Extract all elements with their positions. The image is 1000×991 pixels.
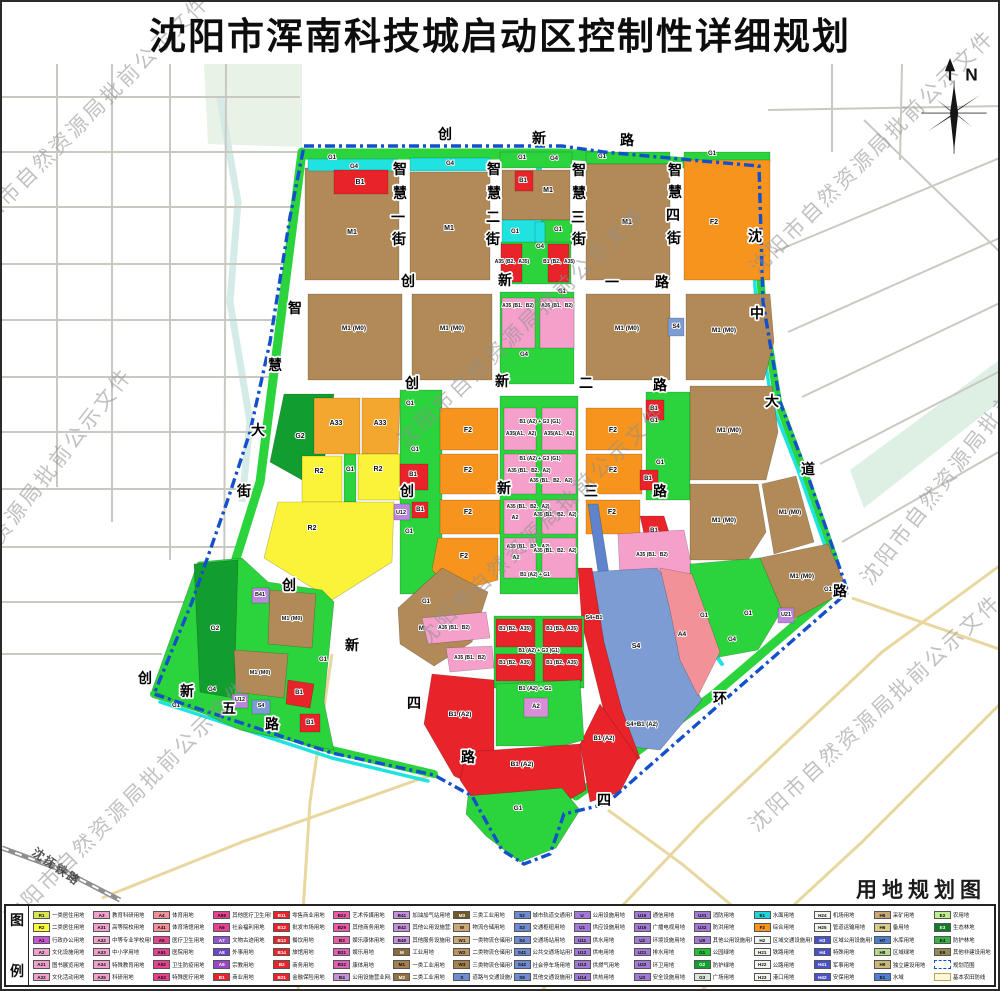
legend-swatch: U15 bbox=[634, 911, 651, 920]
compass-star-vertical bbox=[950, 85, 958, 151]
legend-swatch bbox=[934, 960, 951, 969]
parcel-label: F2 bbox=[464, 509, 472, 516]
legend-label: 供电用地 bbox=[593, 948, 615, 956]
legend-entry: A21图书展览用地 bbox=[33, 959, 91, 971]
legend-label: 水库用地 bbox=[893, 936, 915, 944]
legend-entry: A33中小学用地 bbox=[93, 946, 151, 958]
legend-label: 公用设施营业网点用地 bbox=[352, 973, 391, 981]
parcel-label: B1 (A2) bbox=[449, 711, 472, 718]
parcel-label: M1 (M0) bbox=[440, 325, 464, 332]
legend-label: 综合用地 bbox=[773, 923, 795, 931]
legend-swatch: H6 bbox=[874, 923, 891, 932]
parcel-label: A35 (B2、A35) bbox=[495, 259, 530, 265]
legend-label: 公用设施用地 bbox=[593, 911, 625, 919]
legend-swatch: H41 bbox=[814, 960, 831, 969]
road-name-char: 中 bbox=[750, 305, 764, 321]
legend-entry: A3教育科研用地 bbox=[93, 909, 151, 921]
road-name-char: 新 bbox=[498, 272, 512, 288]
legend-label: 供热用地 bbox=[593, 973, 615, 981]
parcel bbox=[502, 170, 570, 220]
legend-swatch: A35 bbox=[93, 973, 110, 982]
legend-entry: H4特殊用地 bbox=[814, 946, 872, 958]
parcel bbox=[308, 294, 402, 380]
legend-swatch: H7 bbox=[874, 936, 891, 945]
legend-entry: G1公园绿地 bbox=[694, 946, 752, 958]
map-type-label: 用地规划图 bbox=[856, 874, 986, 904]
parcel-label: B1 (B2、A35) bbox=[499, 660, 531, 666]
legend-label: 采矿用地 bbox=[893, 911, 915, 919]
road-name-char: 创 bbox=[437, 126, 452, 142]
legend-label: 康体用地 bbox=[352, 961, 374, 969]
legend-label: 规划范围 bbox=[953, 961, 975, 969]
parcel-label: G1 bbox=[518, 155, 527, 161]
legend-label: 区域绿地 bbox=[893, 948, 915, 956]
legend-swatch: B42 bbox=[393, 923, 410, 932]
legend-swatch: B1 bbox=[213, 973, 230, 982]
legend-swatch: U32 bbox=[694, 923, 711, 932]
parcel bbox=[504, 408, 536, 450]
legend-column: H5采矿用地H6备用地H7水库用地H8区域绿地H9独立建设用地E1水域 bbox=[874, 909, 932, 983]
parcel-label: G4 bbox=[350, 164, 359, 170]
road-name-char: 三 bbox=[571, 209, 585, 225]
parcel-label: G4 bbox=[728, 637, 737, 643]
legend-swatch: A33 bbox=[93, 948, 110, 957]
legend-swatch: U31 bbox=[694, 911, 711, 920]
legend-entry: S9其他交通设施用地 bbox=[514, 971, 572, 983]
legend-label: 行政办公用地 bbox=[52, 936, 84, 944]
legend-label: 通信用地 bbox=[653, 911, 675, 919]
legend-swatch: M3 bbox=[453, 911, 470, 920]
legend-entry: A35科研用地 bbox=[93, 971, 151, 983]
parcel-label: A35 (B1、B2、A2) bbox=[507, 468, 550, 474]
legend-swatch: R2 bbox=[33, 923, 50, 932]
legend-swatch: A34 bbox=[93, 960, 110, 969]
road-name-char: 一 bbox=[391, 209, 405, 225]
legend-entry: H7水库用地 bbox=[874, 934, 932, 946]
legend-swatch: S42 bbox=[514, 960, 531, 969]
legend-entry: E9其他非建设用地 bbox=[934, 946, 992, 958]
legend-swatch: B13 bbox=[273, 936, 290, 945]
legend-label: 金融保险用地 bbox=[292, 973, 324, 981]
legend-label: 工业用地 bbox=[412, 948, 434, 956]
legend-entry: B29其他商务用地 bbox=[333, 921, 391, 933]
legend-entry: B41加油加气站用地 bbox=[393, 909, 451, 921]
legend-entry: H25管道运输用地 bbox=[814, 921, 872, 933]
parcel-label: G1 bbox=[598, 154, 607, 160]
legend-swatch bbox=[934, 973, 951, 982]
legend-label: 艺术传媒用地 bbox=[352, 911, 384, 919]
parcel-label: B1 (B2、A35) bbox=[546, 660, 578, 666]
parcel-label: B1 (A2) + G1 bbox=[519, 686, 552, 692]
legend-label: 水面用地 bbox=[773, 911, 795, 919]
legend-label: 二类居住用地 bbox=[52, 923, 84, 931]
parcel-label: G4 bbox=[520, 352, 529, 358]
road-name-char: 创 bbox=[281, 577, 296, 593]
legend-entry: A8外事用地 bbox=[213, 946, 271, 958]
legend-swatch: A6 bbox=[213, 923, 230, 932]
parcel-label: B1 (A2) + G3 (G1) bbox=[519, 456, 561, 462]
legend-swatch: M1 bbox=[393, 960, 410, 969]
parcel-label: M1 bbox=[444, 225, 454, 232]
legend-column: M3三类工业用地W物流仓储用地W1一类物流仓储用地W2二类物流仓储用地W3三类物… bbox=[453, 909, 511, 983]
legend-entry: F2综合用地 bbox=[754, 921, 812, 933]
legend-swatch: U11 bbox=[574, 936, 591, 945]
legend-swatch: H9 bbox=[874, 960, 891, 969]
parcel-label: M1 (M0) bbox=[717, 427, 741, 434]
legend-swatch: G2 bbox=[694, 960, 711, 969]
legend-swatch: E2 bbox=[934, 911, 951, 920]
legend-column: U31消防用地U32防洪用地U9其他公用设施用地G1公园绿地G2防护绿地G3广场… bbox=[694, 909, 752, 983]
parcel bbox=[496, 619, 535, 647]
legend-swatch: H24 bbox=[814, 911, 831, 920]
parcel-label: B1 bbox=[644, 476, 652, 482]
legend-entry: H22公路用地 bbox=[754, 959, 812, 971]
legend-entry: B21金融保险用地 bbox=[273, 971, 331, 983]
legend-swatch: A22 bbox=[33, 973, 50, 982]
legend-entry: A4体育用地 bbox=[153, 909, 211, 921]
legend-swatch: H2 bbox=[754, 936, 771, 945]
parcel-label: S4+B1 (A2) bbox=[626, 722, 658, 728]
legend-entry: M3三类工业用地 bbox=[453, 909, 511, 921]
legend-swatch: A5 bbox=[153, 936, 170, 945]
legend-label: 广播电视用地 bbox=[653, 923, 685, 931]
legend-entry: A52卫生防疫用地 bbox=[153, 959, 211, 971]
road-name-char: 环 bbox=[713, 690, 727, 706]
parcel-label: M1 (M0) bbox=[712, 327, 736, 334]
legend-entry: W物流仓储用地 bbox=[453, 921, 511, 933]
legend-entry: A32中等专业学校用地 bbox=[93, 934, 151, 946]
legend-label: 备用地 bbox=[893, 923, 909, 931]
legend-entry: A6社会福利用地 bbox=[213, 921, 271, 933]
parcel-label: B1 bbox=[356, 179, 365, 186]
legend-entry: 基本农田防线 bbox=[934, 971, 992, 983]
road-name-char: 街 bbox=[236, 483, 251, 499]
legend-entry: H42安保用地 bbox=[814, 971, 872, 983]
legend-label: 其他公用设施营业网点用地 bbox=[412, 923, 451, 931]
legend-entry: U31消防用地 bbox=[694, 909, 752, 921]
legend-entry: G2防护绿地 bbox=[694, 959, 752, 971]
legend-label: 其他商务用地 bbox=[352, 923, 384, 931]
parcel-label: G4 bbox=[446, 161, 455, 167]
legend-label: 交通枢纽用地 bbox=[533, 923, 565, 931]
legend-label: 供水用地 bbox=[593, 936, 615, 944]
parcel-label: A2 bbox=[532, 704, 540, 710]
parcel-label: R2 bbox=[315, 468, 324, 475]
legend-swatch: S bbox=[453, 973, 470, 982]
legend-label: 中小学用地 bbox=[112, 948, 139, 956]
legend-header-bottom: 例 bbox=[10, 961, 24, 981]
parcel-label: A4 bbox=[678, 631, 687, 638]
legend-swatch: H4 bbox=[814, 948, 831, 957]
parcel-label: G2 bbox=[295, 433, 304, 440]
road-name-char: 智 bbox=[571, 162, 586, 178]
road-name-char: 创 bbox=[400, 273, 415, 289]
legend-swatch: E3 bbox=[934, 923, 951, 932]
road-name-char: 大 bbox=[251, 422, 265, 438]
legend-label: 医疗卫生用地 bbox=[172, 936, 204, 944]
legend-column: S2城市轨道交通用地S3交通枢纽用地S4交通场站用地S41公共交通场站用地S42… bbox=[514, 909, 572, 983]
road-name-char: 新 bbox=[180, 683, 194, 699]
parcel-label: M1 bbox=[347, 229, 357, 236]
legend-label: 特殊医疗用地 bbox=[172, 973, 204, 981]
legend-label: 宗教用地 bbox=[232, 961, 254, 969]
road-name-char: 新 bbox=[495, 373, 509, 389]
legend-swatch: W bbox=[453, 923, 470, 932]
parcel-label: G1 bbox=[328, 155, 337, 161]
legend-label: 卫生防疫用地 bbox=[172, 961, 204, 969]
legend-label: 独立建设用地 bbox=[893, 961, 925, 969]
road-name-char: 新 bbox=[497, 480, 511, 496]
legend-entry: B22艺术传媒用地 bbox=[333, 909, 391, 921]
legend-entry: G3广场用地 bbox=[694, 971, 752, 983]
legend-label: 公园绿地 bbox=[713, 948, 735, 956]
legend-entry: A5医疗卫生用地 bbox=[153, 934, 211, 946]
parcel-label: A35 (B1、B2、A2) bbox=[529, 478, 572, 484]
legend-swatch: G3 bbox=[694, 973, 711, 982]
legend-entry: A53特殊医疗用地 bbox=[153, 971, 211, 983]
legend-label: 一类物流仓储用地 bbox=[472, 936, 511, 944]
parcel-label: B1 bbox=[409, 472, 417, 478]
parcel-label: G1 bbox=[514, 805, 523, 812]
legend-swatch: A4 bbox=[153, 911, 170, 920]
parcel-label: G1 bbox=[511, 229, 520, 235]
parcel-label: F2 bbox=[609, 427, 617, 434]
legend-swatch: A32 bbox=[93, 936, 110, 945]
legend-column: A3教育科研用地A31高等院校用地A32中等专业学校用地A33中小学用地A34特… bbox=[93, 909, 151, 983]
legend-swatch: B29 bbox=[333, 923, 350, 932]
legend-swatch: M2 bbox=[393, 973, 410, 982]
legend-swatch: R1 bbox=[33, 911, 50, 920]
legend-entry: B1商业用地 bbox=[213, 971, 271, 983]
legend-column: A4体育用地A41体育场馆用地A5医疗卫生用地A51医院用地A52卫生防疫用地A… bbox=[153, 909, 211, 983]
legend-entry: M2二类工业用地 bbox=[393, 971, 451, 983]
legend-label: 文化设施用地 bbox=[52, 948, 84, 956]
legend-entry: H6备用地 bbox=[874, 921, 932, 933]
legend-swatch: B31 bbox=[333, 948, 350, 957]
legend-swatch: B3 bbox=[333, 936, 350, 945]
legend-swatch: H25 bbox=[814, 923, 831, 932]
legend-label: 防护绿地 bbox=[713, 961, 735, 969]
legend-column: U公用设施用地U1供应设施用地U11供水用地U12供电用地U13供燃气用地U14… bbox=[574, 909, 632, 983]
legend-entry: U3安全设施用地 bbox=[634, 971, 692, 983]
road-name-char: 创 bbox=[137, 670, 152, 686]
parcel-label: B1 bbox=[416, 507, 424, 513]
parcel-label: G1 bbox=[824, 587, 833, 593]
parcel-label: B1 bbox=[519, 178, 527, 184]
north-arrow: N bbox=[907, 54, 993, 166]
legend-entry: A31高等院校用地 bbox=[93, 921, 151, 933]
legend-label: 科研用地 bbox=[112, 973, 134, 981]
parcel-label: S4 bbox=[672, 324, 680, 330]
legend-swatch: S4 bbox=[514, 936, 531, 945]
parcel-label: R2 bbox=[308, 525, 317, 532]
legend-entry: U16广播电视用地 bbox=[634, 921, 692, 933]
legend-swatch: B14 bbox=[273, 948, 290, 957]
legend-label: 餐饮用地 bbox=[292, 936, 314, 944]
legend-entry: W2二类物流仓储用地 bbox=[453, 946, 511, 958]
parcel-label: G1 bbox=[656, 460, 665, 466]
legend-entry: R1一类居住用地 bbox=[33, 909, 91, 921]
parcel bbox=[344, 454, 356, 502]
legend-swatch: U bbox=[574, 911, 591, 920]
legend-label: 娱乐康体用地 bbox=[352, 936, 384, 944]
legend-swatch: A2 bbox=[33, 948, 50, 957]
legend-entry: M工业用地 bbox=[393, 946, 451, 958]
legend-entry: R2二类居住用地 bbox=[33, 921, 91, 933]
parcel-label: M1 (M0) bbox=[250, 670, 271, 676]
legend-swatch: E9 bbox=[934, 948, 951, 957]
legend-swatch: H8 bbox=[874, 948, 891, 957]
legend-label: 供燃气用地 bbox=[593, 961, 620, 969]
road-name-char: 街 bbox=[571, 231, 586, 247]
legend-label: 物流仓储用地 bbox=[472, 923, 504, 931]
legend-entry: B3娱乐康体用地 bbox=[333, 934, 391, 946]
legend-label: 其他服务设施用地 bbox=[412, 936, 451, 944]
parcel-label: B1 (B2、A35) bbox=[499, 626, 531, 632]
parcel-label: M1 (M0) bbox=[790, 573, 814, 580]
legend-entry: A1行政办公用地 bbox=[33, 934, 91, 946]
legend-swatch: E1 bbox=[754, 911, 771, 920]
legend-column: R1一类居住用地R2二类居住用地A1行政办公用地A2文化设施用地A21图书展览用… bbox=[33, 909, 91, 983]
parcel-label: A35 (B1、B2) bbox=[454, 655, 486, 661]
road-name-char: 四 bbox=[597, 792, 611, 808]
legend: 图 例 R1一类居住用地R2二类居住用地A1行政办公用地A2文化设施用地A21图… bbox=[4, 904, 996, 987]
road-name-char: 创 bbox=[404, 375, 419, 391]
legend-label: 特殊用地 bbox=[833, 948, 855, 956]
parcel-label: G1 bbox=[744, 611, 753, 617]
legend-swatch: A51 bbox=[153, 948, 170, 957]
road-name-char: 二 bbox=[579, 375, 593, 391]
legend-label: 城市轨道交通用地 bbox=[533, 911, 572, 919]
parcel-label: U12 bbox=[396, 510, 406, 516]
legend-label: 安全设施用地 bbox=[653, 973, 685, 981]
legend-column: U15通信用地U16广播电视用地U2环境设施用地U21排水用地U22环卫用地U3… bbox=[634, 909, 692, 983]
legend-swatch: A7 bbox=[213, 936, 230, 945]
legend-entry: H2区域交通设施用地 bbox=[754, 934, 812, 946]
legend-entry: E1水面用地 bbox=[754, 909, 812, 921]
legend-header-top: 图 bbox=[10, 910, 24, 930]
legend-entry: A2文化设施用地 bbox=[33, 946, 91, 958]
legend-swatch: A9 bbox=[213, 960, 230, 969]
legend-swatch: B12 bbox=[273, 923, 290, 932]
legend-column: E1水面用地F2综合用地H2区域交通设施用地H21铁路用地H22公路用地H23港… bbox=[754, 909, 812, 983]
road-name-char: 路 bbox=[620, 132, 635, 148]
parcel-label: A35 (B1、B2) bbox=[636, 552, 668, 558]
legend-entry: S2城市轨道交通用地 bbox=[514, 909, 572, 921]
legend-label: 文化活动用地 bbox=[52, 973, 84, 981]
legend-entry: U11供水用地 bbox=[574, 934, 632, 946]
road-name-char: 慧 bbox=[487, 185, 501, 201]
legend-swatch: B2 bbox=[273, 960, 290, 969]
legend-swatch: A1 bbox=[33, 936, 50, 945]
legend-swatch: A59 bbox=[213, 911, 230, 920]
parcel-label: B41 bbox=[255, 592, 265, 598]
legend-swatch: U12 bbox=[574, 948, 591, 957]
legend-label: 环卫用地 bbox=[653, 961, 675, 969]
legend-label: 其他医疗卫生用地 bbox=[232, 911, 271, 919]
legend-label: 道路与交通设施用地 bbox=[472, 973, 511, 981]
legend-label: 文物古迹用地 bbox=[232, 936, 264, 944]
legend-entry: B12批发市场用地 bbox=[273, 921, 331, 933]
legend-swatch: S2 bbox=[514, 911, 531, 920]
legend-swatch: A21 bbox=[33, 960, 50, 969]
legend-entry: E3生态林地 bbox=[934, 921, 992, 933]
parcel bbox=[440, 454, 498, 494]
legend-swatch: H42 bbox=[814, 973, 831, 982]
legend-label: 商业用地 bbox=[232, 973, 254, 981]
legend-entry: U13供燃气用地 bbox=[574, 959, 632, 971]
legend-label: 医院用地 bbox=[172, 948, 194, 956]
legend-label: 区域交通设施用地 bbox=[773, 936, 812, 944]
legend-header: 图 例 bbox=[6, 906, 29, 985]
parcel-label: G1 bbox=[700, 613, 709, 619]
legend-swatch: U3 bbox=[634, 973, 651, 982]
legend-label: 公共交通场站用地 bbox=[533, 948, 572, 956]
planning-map-page: M1B1M1M1B1A35 (B2、A35)B1 (B2、A35)M1F2M1 … bbox=[0, 0, 1000, 991]
legend-label: 批发市场用地 bbox=[292, 923, 324, 931]
legend-swatch: S41 bbox=[514, 948, 531, 957]
legend-swatch: H5 bbox=[874, 911, 891, 920]
parcel-label: M1 (M0) bbox=[342, 325, 366, 332]
page-title: 沈阳市浑南科技城启动区控制性详细规划 bbox=[2, 6, 998, 60]
legend-label: 一类居住用地 bbox=[52, 911, 84, 919]
road-name-char: 创 bbox=[399, 483, 414, 499]
legend-label: 其他交通设施用地 bbox=[533, 973, 572, 981]
legend-entry: B14旅馆用地 bbox=[273, 946, 331, 958]
legend-label: 排水用地 bbox=[653, 948, 675, 956]
legend-entry: H3区域公用设施用地 bbox=[814, 934, 872, 946]
road-name-char: 路 bbox=[655, 274, 670, 290]
parcel-label: F2 bbox=[608, 509, 616, 516]
parcel-label: F2 bbox=[460, 553, 468, 560]
legend-entry: B42其他公用设施营业网点用地 bbox=[393, 921, 451, 933]
legend-label: 三类工业用地 bbox=[472, 911, 504, 919]
parcel-label: B1 bbox=[295, 690, 303, 696]
legend-label: 社会福利用地 bbox=[232, 923, 264, 931]
road-name-char: 四 bbox=[407, 695, 421, 711]
road-name-char: 慧 bbox=[572, 185, 586, 201]
parcel-label: G1 bbox=[422, 599, 431, 605]
legend-entry: W1一类物流仓储用地 bbox=[453, 934, 511, 946]
legend-entry: E1水域 bbox=[874, 971, 932, 983]
legend-column: B11零售商业用地B12批发市场用地B13餐饮用地B14旅馆用地B2商务用地B2… bbox=[273, 909, 331, 983]
parcel bbox=[440, 500, 500, 534]
legend-column: B22艺术传媒用地B29其他商务用地B3娱乐康体用地B31娱乐用地B32康体用地… bbox=[333, 909, 391, 983]
legend-swatch: S3 bbox=[514, 923, 531, 932]
legend-label: 娱乐用地 bbox=[352, 948, 374, 956]
legend-entry: B13餐饮用地 bbox=[273, 934, 331, 946]
legend-entry: B49其他服务设施用地 bbox=[393, 934, 451, 946]
legend-label: 消防用地 bbox=[713, 911, 735, 919]
road-name-char: 路 bbox=[265, 716, 280, 732]
parcel-label: R2 bbox=[374, 466, 383, 473]
parcel-label: G1 bbox=[319, 657, 328, 663]
parcel-label: F2 bbox=[464, 467, 472, 474]
parcel-label: A35(A1、A2) bbox=[506, 431, 537, 437]
legend-swatch: S9 bbox=[514, 973, 531, 982]
legend-swatch: W1 bbox=[453, 936, 470, 945]
legend-label: 加油加气站用地 bbox=[412, 911, 450, 919]
legend-entry: M1一类工业用地 bbox=[393, 959, 451, 971]
road-name-char: 沈 bbox=[748, 228, 762, 244]
parcel-label: B1 (A2) + G3 (G1) bbox=[519, 419, 561, 425]
parcel bbox=[586, 294, 670, 380]
parcel bbox=[496, 654, 535, 681]
legend-label: 广场用地 bbox=[713, 973, 735, 981]
legend-label: 环境设施用地 bbox=[653, 936, 685, 944]
legend-entry: E4防护林地 bbox=[934, 934, 992, 946]
legend-swatch: U1 bbox=[574, 923, 591, 932]
